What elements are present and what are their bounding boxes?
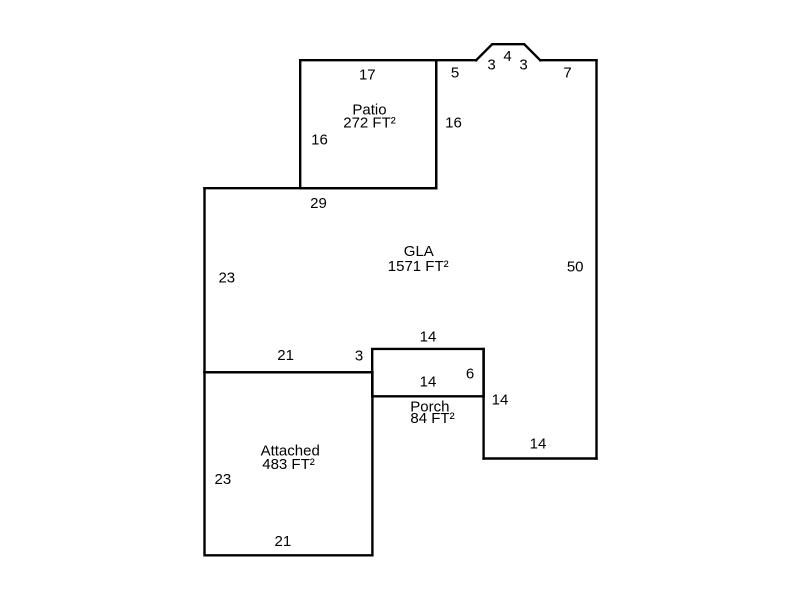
svg-text:272 FT²: 272 FT² — [343, 115, 396, 132]
svg-text:14: 14 — [530, 436, 547, 453]
svg-text:23: 23 — [215, 471, 232, 488]
svg-text:4: 4 — [503, 48, 511, 65]
svg-text:14: 14 — [492, 391, 509, 408]
svg-text:16: 16 — [445, 114, 462, 131]
svg-text:50: 50 — [567, 258, 584, 275]
svg-text:23: 23 — [218, 270, 235, 287]
svg-text:3: 3 — [487, 57, 495, 74]
svg-text:3: 3 — [519, 57, 527, 74]
svg-text:29: 29 — [310, 195, 327, 212]
svg-text:17: 17 — [359, 67, 376, 84]
svg-text:84 FT²: 84 FT² — [410, 410, 454, 427]
svg-text:14: 14 — [420, 328, 437, 345]
svg-text:14: 14 — [420, 373, 437, 390]
svg-text:5: 5 — [451, 65, 459, 82]
svg-text:6: 6 — [466, 365, 474, 382]
svg-text:7: 7 — [563, 65, 571, 82]
svg-text:3: 3 — [355, 347, 363, 364]
svg-text:21: 21 — [275, 533, 292, 550]
svg-text:16: 16 — [311, 132, 328, 149]
svg-text:1571 FT²: 1571 FT² — [388, 258, 449, 275]
svg-text:483 FT²: 483 FT² — [262, 456, 315, 473]
svg-text:21: 21 — [277, 347, 294, 364]
